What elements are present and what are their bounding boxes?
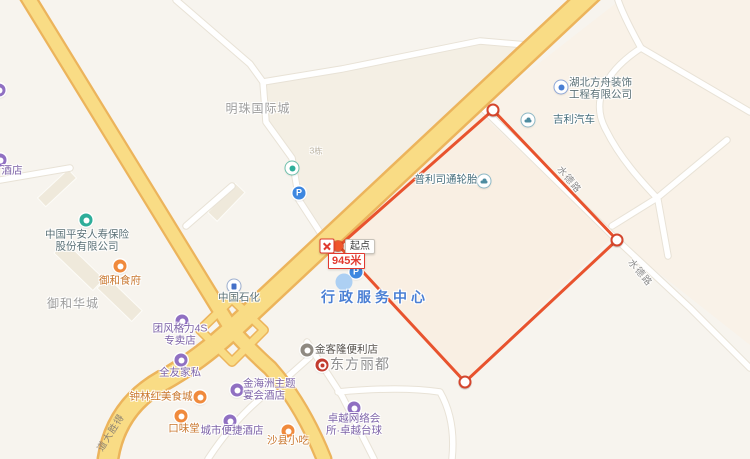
area-label-mingzhu: 明珠国际城 <box>225 100 290 117</box>
company-poi-icon[interactable] <box>80 214 93 227</box>
road-label-shuidelu-1: 水德路 <box>555 162 586 195</box>
road-label-shuidelu-2: 水德路 <box>626 255 657 288</box>
shaxian-snacks-label[interactable]: 沙县小吃 <box>267 435 309 447</box>
route-start-marker[interactable] <box>333 241 343 251</box>
poi-layer: 中国平安人寿保险股份有限公司P普利司通轮胎吉利汽车湖北方舟装饰工程有限公司中国石… <box>0 0 750 459</box>
shop-icon[interactable] <box>175 354 188 367</box>
pingan-insurance-label[interactable]: 中国平安人寿保险股份有限公司 <box>45 230 129 253</box>
poi-icon[interactable] <box>0 84 6 97</box>
map-canvas[interactable]: 中国平安人寿保险股份有限公司P普利司通轮胎吉利汽车湖北方舟装饰工程有限公司中国石… <box>0 0 750 459</box>
hotel-icon[interactable] <box>231 384 244 397</box>
city-comfort-inn-label[interactable]: 城市便捷酒店 <box>201 425 264 437</box>
label-building-no: 3栋 <box>310 146 322 157</box>
area-label-dongfanglidu: 东方丽都 <box>330 354 390 374</box>
geely-auto-label[interactable]: 吉利汽车 <box>553 114 595 126</box>
convenience-store-icon[interactable] <box>301 344 314 357</box>
car-dealer-icon[interactable] <box>522 114 535 127</box>
zhonglinhong-foodcity-label[interactable]: 钟林红美食城 <box>130 391 193 403</box>
bridgestone-tyres-label[interactable]: 普利司通轮胎 <box>415 174 478 186</box>
quanyou-furniture-label[interactable]: 全友家私 <box>159 367 201 379</box>
hotel-left-edge-label[interactable]: 酒店 <box>2 165 23 177</box>
parking-icon[interactable]: P <box>293 187 306 200</box>
delete-point-button[interactable] <box>320 239 335 254</box>
gree-4s-store-label[interactable]: 团风格力4S专卖店 <box>153 324 208 347</box>
route-waypoint[interactable] <box>487 104 500 117</box>
restaurant-icon[interactable] <box>114 260 127 273</box>
jinhaizhou-hotel-label[interactable]: 金海洲主题宴会酒店 <box>243 379 296 402</box>
kouweitang-label[interactable]: 口味堂 <box>168 423 200 435</box>
road-label-deshengdadao: 道大胜得 <box>93 410 127 453</box>
label-xingzheng-center: 行政服务中心 <box>321 287 429 307</box>
route-waypoint[interactable] <box>459 376 472 389</box>
sinopec-label[interactable]: 中国石化 <box>218 292 260 304</box>
route-waypoint[interactable] <box>611 234 624 247</box>
hubei-fangzhou-decoration-label[interactable]: 湖北方舟装饰工程有限公司 <box>569 78 632 101</box>
car-dealer-icon[interactable] <box>478 175 491 188</box>
route-distance-label: 945米 <box>328 253 365 269</box>
restaurant-icon[interactable] <box>194 391 207 404</box>
yuhe-restaurant-label[interactable]: 御和食府 <box>99 275 141 287</box>
restaurant-icon[interactable] <box>175 410 188 423</box>
company-poi-icon[interactable] <box>555 81 568 94</box>
landmark-icon[interactable] <box>316 359 329 372</box>
zhuoyue-club-label[interactable]: 卓越网络会所·卓越台球 <box>326 414 382 437</box>
route-start-label: 起点 <box>345 239 375 254</box>
leaf-icon[interactable] <box>286 162 299 175</box>
area-label-yuhehuacheng: 御和华城 <box>47 295 99 312</box>
